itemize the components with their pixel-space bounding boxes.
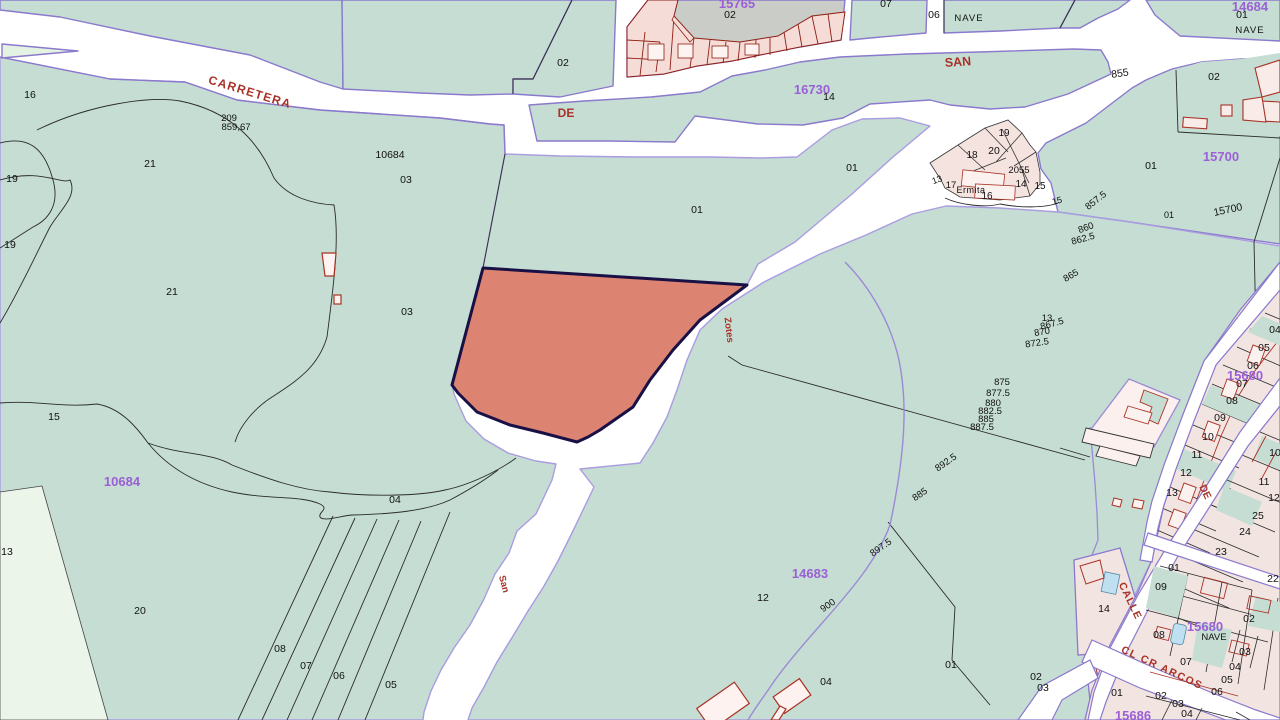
svg-text:12: 12 [1268,492,1280,504]
svg-text:12: 12 [757,592,769,604]
svg-text:17: 17 [946,180,957,191]
svg-text:11: 11 [1192,449,1203,461]
svg-text:15686: 15686 [1115,708,1151,720]
svg-text:20: 20 [988,145,1000,157]
svg-text:855: 855 [1110,67,1129,81]
svg-text:04: 04 [820,676,832,688]
svg-text:04: 04 [1181,708,1193,720]
svg-text:18: 18 [966,150,978,161]
svg-text:2055: 2055 [1008,165,1029,176]
svg-text:19: 19 [998,128,1010,139]
svg-text:19: 19 [6,173,18,185]
svg-text:DE: DE [558,106,575,120]
svg-text:13: 13 [1,546,13,558]
svg-text:05: 05 [1221,674,1233,686]
svg-text:05: 05 [1258,342,1270,354]
svg-text:04: 04 [1269,324,1280,336]
svg-text:NAVE: NAVE [1201,632,1226,643]
svg-text:10684: 10684 [104,474,141,489]
svg-text:01: 01 [846,162,858,174]
svg-text:06: 06 [333,670,345,682]
svg-text:21: 21 [144,158,156,170]
svg-text:04: 04 [1229,661,1241,673]
svg-text:08: 08 [1153,629,1165,641]
svg-text:01: 01 [1164,210,1174,220]
svg-text:06: 06 [1211,686,1223,698]
svg-text:02: 02 [1155,690,1167,702]
svg-text:23: 23 [1215,546,1227,558]
svg-text:20: 20 [134,605,146,617]
svg-text:10684: 10684 [375,149,404,161]
svg-text:SAN: SAN [944,54,971,70]
svg-text:01: 01 [945,659,957,671]
svg-text:09: 09 [1155,581,1167,593]
svg-text:859,67: 859,67 [221,122,250,133]
svg-text:03: 03 [1037,682,1049,694]
svg-text:15700: 15700 [1203,149,1239,164]
svg-text:14: 14 [1015,179,1027,190]
svg-text:NAVE: NAVE [1235,25,1264,36]
svg-text:12: 12 [1180,467,1192,479]
svg-text:01: 01 [1145,160,1157,172]
svg-text:19: 19 [4,239,16,251]
svg-text:25: 25 [1252,510,1264,522]
svg-text:16: 16 [24,89,36,101]
svg-text:875: 875 [994,377,1010,388]
svg-text:887.5: 887.5 [970,422,994,433]
svg-text:07: 07 [1180,656,1192,668]
svg-text:08: 08 [1226,395,1238,407]
svg-text:01: 01 [1111,687,1123,699]
svg-text:NAVE: NAVE [954,13,983,24]
svg-text:13: 13 [1166,487,1178,499]
svg-text:02: 02 [724,9,736,21]
svg-text:24: 24 [1239,526,1251,538]
svg-text:09: 09 [1214,412,1226,424]
svg-text:07: 07 [300,660,312,672]
svg-text:02: 02 [1243,613,1255,625]
svg-text:01: 01 [1236,9,1248,21]
svg-text:01: 01 [691,204,703,216]
svg-text:21: 21 [166,286,178,298]
svg-text:03: 03 [1239,646,1251,658]
svg-text:15: 15 [48,411,60,423]
svg-text:08: 08 [274,643,286,655]
svg-text:22: 22 [1267,573,1279,585]
svg-text:03: 03 [400,174,412,186]
svg-text:03: 03 [401,306,413,318]
svg-text:11: 11 [1259,476,1270,488]
svg-text:10: 10 [1269,447,1280,459]
svg-text:07: 07 [880,0,892,10]
svg-text:16: 16 [981,191,993,202]
svg-text:04: 04 [389,494,401,506]
svg-text:14: 14 [1098,603,1110,615]
svg-text:02: 02 [1208,71,1220,83]
svg-text:02: 02 [557,57,569,69]
svg-text:06: 06 [1247,360,1259,372]
svg-text:07: 07 [1236,378,1248,390]
svg-text:14683: 14683 [792,566,828,581]
svg-text:15: 15 [1034,181,1046,192]
svg-text:14: 14 [823,91,835,103]
svg-text:06: 06 [928,9,940,21]
svg-text:01: 01 [1168,562,1180,574]
svg-text:10: 10 [1202,431,1214,443]
svg-text:05: 05 [385,679,397,691]
